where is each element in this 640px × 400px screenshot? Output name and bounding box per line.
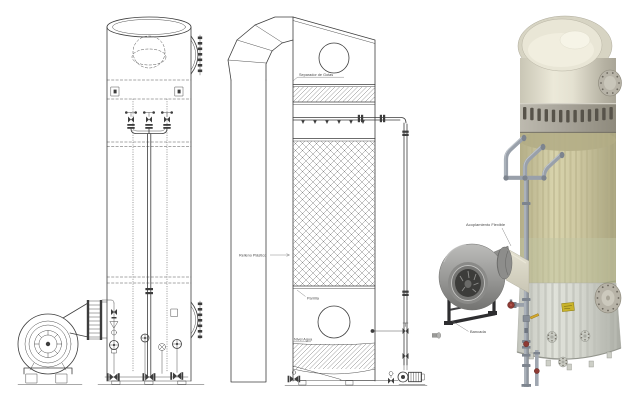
label-nivel-agua: Nivel Agua: [294, 338, 313, 342]
louvered-band: [520, 103, 616, 133]
front-elevation-view: [0, 0, 215, 400]
section-view: Separador de Gotas Relleno Plástico Parr…: [215, 0, 432, 400]
flexible-coupling-front: [87, 300, 107, 340]
water-sump: [293, 343, 375, 380]
label-relleno-plastico: Relleno Plástico: [239, 254, 266, 258]
leader-parrilla: [297, 290, 306, 297]
label-acoplamiento-flexible: Acoplamiento Flexible: [466, 222, 506, 227]
packing-bed: [293, 139, 375, 289]
label-separador-de-gotas: Separador de Gotas: [299, 73, 333, 77]
tower-shell-front: [107, 17, 191, 385]
manhole-bottom: [318, 306, 350, 338]
label-parrilla: Parrilla: [307, 297, 320, 301]
leader-separador: [294, 77, 345, 80]
nozzle-flange-top-right: [599, 70, 622, 96]
nameplate: [562, 302, 575, 311]
scrubber-drawing-sheet: Separador de Gotas Relleno Plástico Parr…: [0, 0, 640, 400]
centrifugal-fan-front: [18, 303, 88, 385]
render-3d-view: Acoplamiento Flexible Bancada: [432, 0, 640, 400]
label-bancada: Bancada: [470, 329, 487, 334]
inline-filter-regulator: [102, 300, 118, 341]
leader-relleno: [270, 254, 290, 257]
manhole-flange-3d: [595, 283, 621, 313]
mist-eliminator: [293, 85, 375, 105]
left-edge-fitting: [432, 333, 441, 339]
side-nozzle-flange-top: [191, 35, 202, 75]
manhole-top: [319, 43, 349, 73]
spray-drop-pipe: [148, 134, 151, 376]
leader-acoplamiento: [502, 228, 511, 246]
junction-box: [171, 309, 178, 317]
leader-bancada: [452, 321, 469, 332]
float-valve: [371, 323, 409, 334]
gas-inlet-duct-section: [228, 17, 293, 382]
side-nozzle-flange-bottom: [191, 301, 202, 339]
